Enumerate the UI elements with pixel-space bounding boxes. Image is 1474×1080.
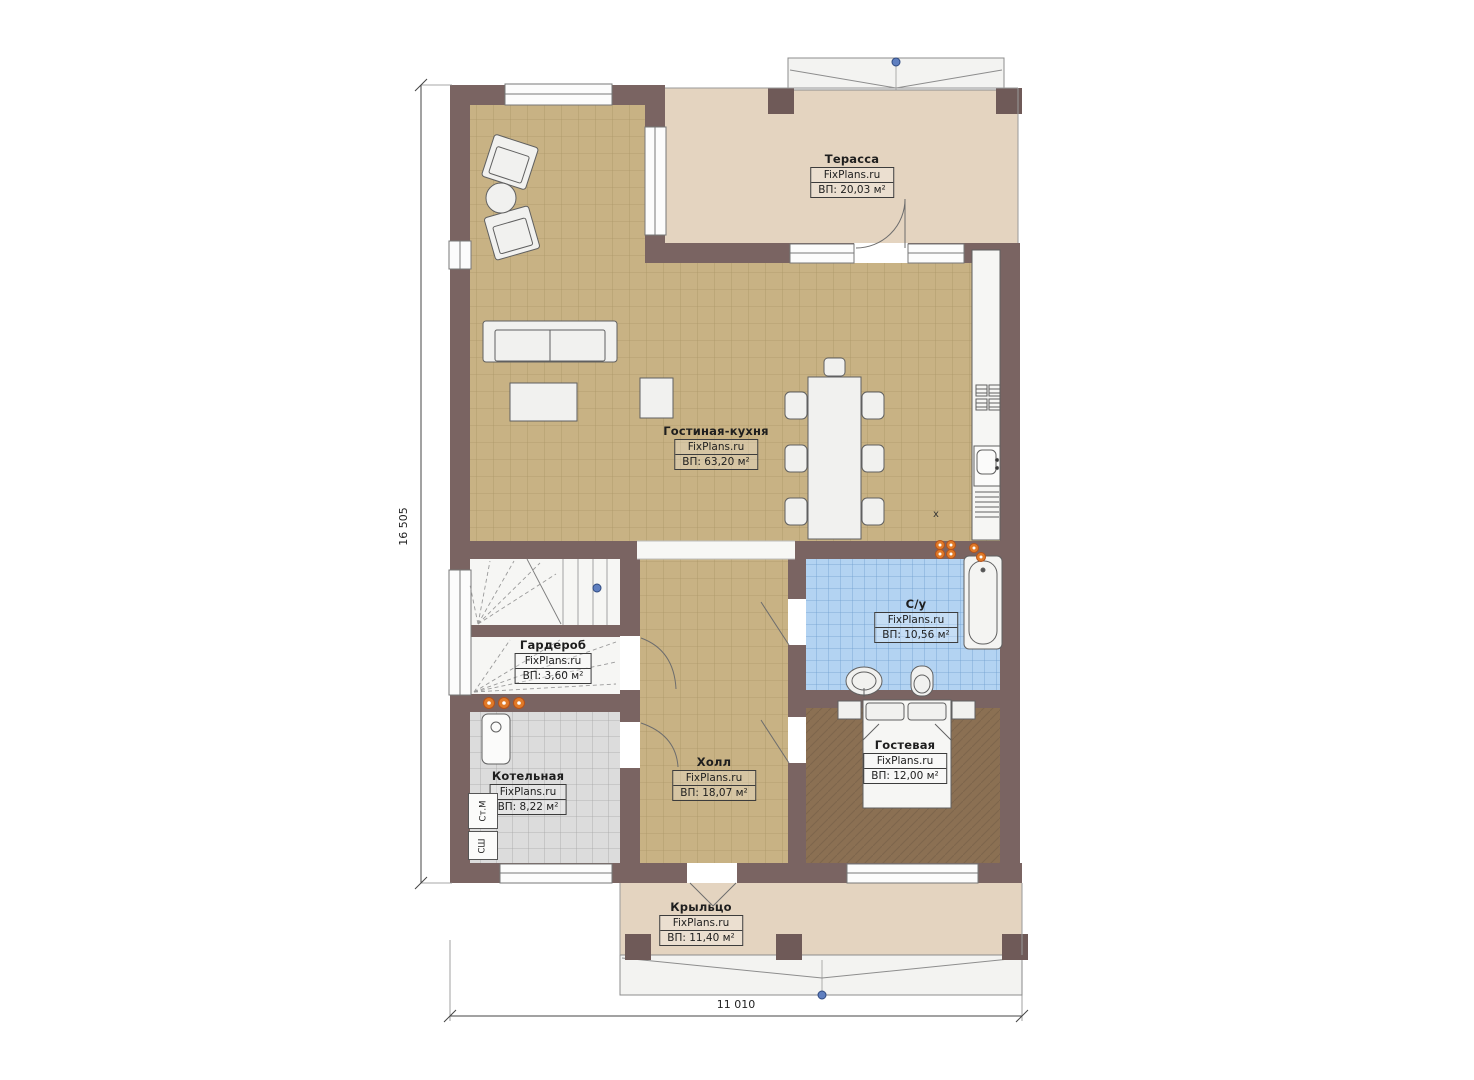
room-area: ВП: 12,00 м² [864,769,946,783]
room-label-terrace: Терасса FixPlans.ru ВП: 20,03 м² [810,152,894,198]
brand-text: FixPlans.ru [516,654,591,669]
kitchen-counter [972,250,1000,540]
brand-text: FixPlans.ru [864,754,946,769]
boiler-unit [482,714,510,764]
room-info-box: FixPlans.ru ВП: 12,00 м² [863,753,947,784]
bathtub [964,556,1002,649]
room-label-wardrobe: Гардероб FixPlans.ru ВП: 3,60 м² [515,638,592,684]
window-terrace-divider [645,127,666,235]
window-terrace-2 [908,244,964,263]
room-area: ВП: 18,07 м² [673,786,755,800]
room-area: ВП: 11,40 м² [660,931,742,945]
window-guest [847,864,978,883]
room-area: ВП: 20,03 м² [811,183,893,197]
room-info-box: FixPlans.ru ВП: 8,22 м² [490,784,567,815]
kitchen-x-marker: x [933,509,939,520]
room-info-box: FixPlans.ru ВП: 20,03 м² [810,167,894,198]
room-area: ВП: 8,22 м² [491,800,566,814]
porch-steps [620,955,1022,995]
room-name: Гардероб [515,638,592,652]
dimension-width: 11 010 [717,998,756,1011]
washing-machine-tag: Ст.М [468,793,498,829]
window-left-1 [449,241,471,269]
room-name: Холл [672,755,756,769]
brand-text: FixPlans.ru [491,785,566,800]
floorplan-canvas: Терасса FixPlans.ru ВП: 20,03 м² Гостина… [0,0,1474,1080]
brand-text: FixPlans.ru [675,440,757,455]
room-label-boiler-room: Котельная FixPlans.ru ВП: 8,22 м² [490,769,567,815]
brand-text: FixPlans.ru [811,168,893,183]
room-area: ВП: 10,56 м² [875,628,957,642]
window-left-2 [449,570,471,695]
nightstand-right [952,701,975,719]
room-info-box: FixPlans.ru ВП: 63,20 м² [674,439,758,470]
room-label-porch: Крыльцо FixPlans.ru ВП: 11,40 м² [659,900,743,946]
room-label-guest-room: Гостевая FixPlans.ru ВП: 12,00 м² [863,738,947,784]
washing-machine-label: Ст.М [478,801,488,822]
room-name: С/у [874,597,958,611]
window-terrace-1 [790,244,854,263]
wide-opening-living-hall [637,541,795,559]
round-table [486,183,516,213]
room-area: ВП: 63,20 м² [675,455,757,469]
coffee-table [510,383,577,421]
room-info-box: FixPlans.ru ВП: 11,40 м² [659,915,743,946]
room-name: Гостевая [863,738,947,752]
room-label-bathroom: С/у FixPlans.ru ВП: 10,56 м² [874,597,958,643]
brand-text: FixPlans.ru [673,771,755,786]
nightstand-left [838,701,861,719]
room-info-box: FixPlans.ru ВП: 10,56 м² [874,612,958,643]
brand-text: FixPlans.ru [660,916,742,931]
dimension-height: 16 505 [397,507,410,546]
room-name: Гостиная-кухня [663,424,768,438]
room-name: Котельная [490,769,567,783]
toilet [911,666,933,696]
room-info-box: FixPlans.ru ВП: 18,07 м² [672,770,756,801]
floors [470,88,1022,955]
brand-text: FixPlans.ru [875,613,957,628]
room-label-hall: Холл FixPlans.ru ВП: 18,07 м² [672,755,756,801]
room-name: Крыльцо [659,900,743,914]
sofa [483,321,617,362]
room-name: Терасса [810,152,894,166]
window-boiler [500,864,612,883]
room-area: ВП: 3,60 м² [516,669,591,683]
window-top [505,84,612,105]
side-table [640,378,673,418]
drying-cabinet-label: СШ [478,838,488,853]
drying-cabinet-tag: СШ [468,831,498,860]
floor-hall [640,559,788,863]
room-label-living-kitchen: Гостиная-кухня FixPlans.ru ВП: 63,20 м² [663,424,768,470]
room-info-box: FixPlans.ru ВП: 3,60 м² [515,653,592,684]
